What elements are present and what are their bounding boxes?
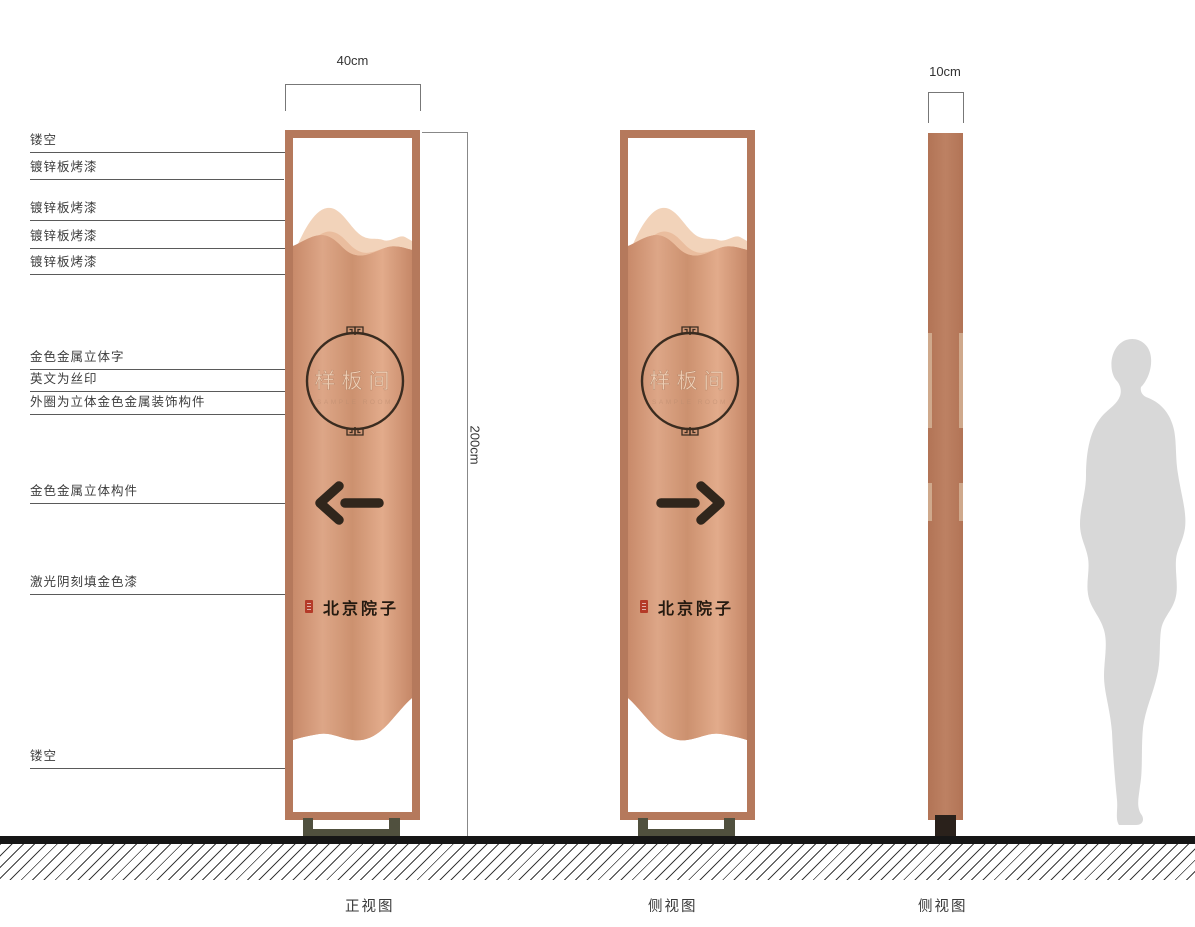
leader-line <box>30 369 323 370</box>
annotation-english-silkscreen: 英文为丝印 <box>30 372 98 387</box>
edge-strip <box>928 333 932 428</box>
room-label-english: SAMPLE ROOM <box>317 399 393 406</box>
human-scale-silhouette <box>1040 336 1192 833</box>
annotation-outer-ring: 外圈为立体金色金属装饰构件 <box>30 395 206 410</box>
front-pedestal <box>303 818 400 837</box>
protruding-ring-edge <box>928 333 963 428</box>
edge-strip <box>959 483 963 521</box>
annotation-galvanized-3: 镀锌板烤漆 <box>30 229 98 244</box>
front-view-artwork: 样板间 SAMPLE ROOM 北京院子 <box>293 138 412 812</box>
dimension-tick-top <box>422 132 467 133</box>
caption-side-view-2: 侧视图 <box>918 895 968 916</box>
side-view-panel: 样板间 SAMPLE ROOM 北京院子 <box>620 130 755 820</box>
brand-text: 北京院子 <box>323 599 399 618</box>
leader-line <box>30 414 307 415</box>
brand-text: 北京院子 <box>658 599 734 618</box>
brushed-texture <box>293 235 412 740</box>
annotation-galvanized-1: 镀锌板烤漆 <box>30 160 98 175</box>
dimension-height: 200cm <box>468 426 483 466</box>
annotation-label: 激光阴刻填金色漆 <box>30 575 138 589</box>
annotation-label: 外圈为立体金色金属装饰构件 <box>30 395 206 409</box>
room-label-text: 样板间 <box>650 370 731 393</box>
leader-line <box>30 594 285 595</box>
thin-side-view-bar <box>928 133 963 820</box>
annotation-label: 镀锌板烤漆 <box>30 160 98 174</box>
caption-front-view: 正视图 <box>345 895 395 916</box>
caption-side-view-1: 侧视图 <box>648 895 698 916</box>
silhouette-shape <box>1080 339 1185 825</box>
room-label-english: SAMPLE ROOM <box>652 399 728 406</box>
annotation-hollow-bottom: 镂空 <box>30 749 57 764</box>
annotation-label: 镀锌板烤漆 <box>30 229 98 243</box>
dimension-bracket-front <box>285 84 421 111</box>
dimension-bracket-side <box>928 92 964 123</box>
edge-strip <box>959 333 963 428</box>
annotation-galvanized-4: 镀锌板烤漆 <box>30 255 98 270</box>
leader-line <box>30 220 303 221</box>
annotation-label: 镂空 <box>30 749 57 763</box>
leader-line <box>30 768 303 769</box>
annotation-hollow-top: 镂空 <box>30 133 57 148</box>
room-label-text: 样板间 <box>315 370 396 393</box>
side-pedestal <box>638 818 735 837</box>
annotation-label: 英文为丝印 <box>30 372 98 386</box>
dimension-side-width: 10cm <box>915 64 975 79</box>
leader-line <box>30 274 293 275</box>
drawing-canvas: 镂空 镀锌板烤漆 镀锌板烤漆 镀锌板烤漆 镀锌板烤漆 金色金属立体字 英文为丝印… <box>0 0 1195 927</box>
side-view-artwork: 样板间 SAMPLE ROOM 北京院子 <box>628 138 747 812</box>
thin-side-base <box>935 815 956 838</box>
annotation-label: 镂空 <box>30 133 57 147</box>
protruding-arrow-edge <box>928 483 963 521</box>
annotation-gold-component: 金色金属立体构件 <box>30 484 138 499</box>
annotation-laser-engraved: 激光阴刻填金色漆 <box>30 575 138 590</box>
leader-line <box>30 152 307 153</box>
annotation-label: 镀锌板烤漆 <box>30 255 98 269</box>
annotation-galvanized-2: 镀锌板烤漆 <box>30 201 98 216</box>
leader-line <box>30 248 291 249</box>
dimension-front-width: 40cm <box>285 53 420 68</box>
brushed-texture <box>628 235 747 740</box>
annotation-label: 金色金属立体构件 <box>30 484 138 498</box>
leader-line <box>30 179 284 180</box>
edge-strip <box>928 483 932 521</box>
annotation-label: 镀锌板烤漆 <box>30 201 98 215</box>
annotation-label: 金色金属立体字 <box>30 350 125 364</box>
ground-hatch <box>0 844 1195 880</box>
dimension-height-line <box>467 132 468 844</box>
ground-line <box>0 836 1195 844</box>
annotation-gold-letters: 金色金属立体字 <box>30 350 125 365</box>
front-view-panel: 样板间 SAMPLE ROOM 北京院子 <box>285 130 420 820</box>
